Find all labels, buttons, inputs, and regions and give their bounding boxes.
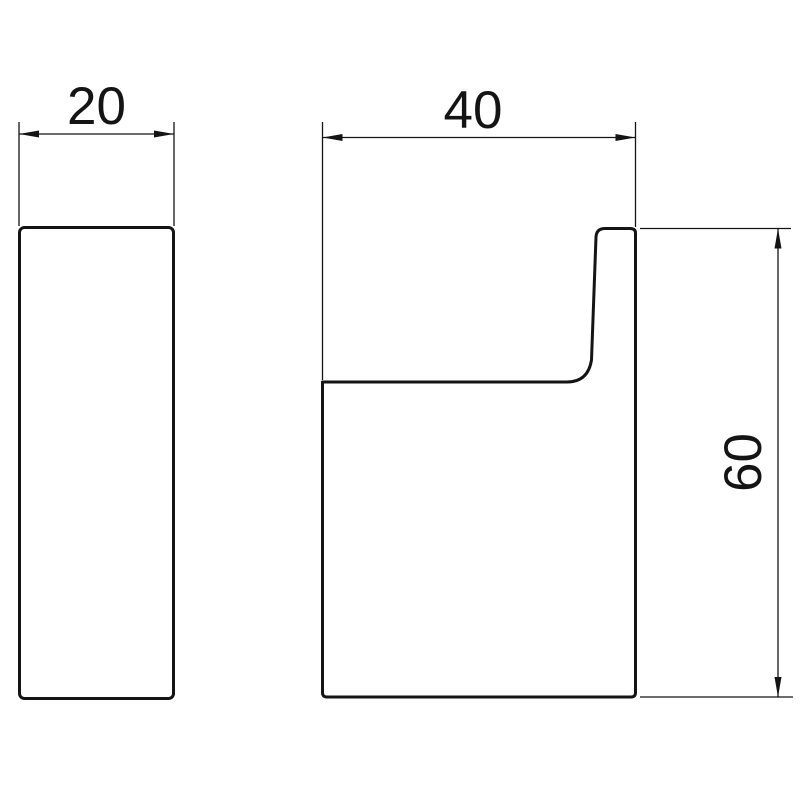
arrowhead-left-icon xyxy=(19,131,39,138)
dimension-label-front-width: 40 xyxy=(444,81,503,140)
arrowhead-right-icon xyxy=(154,131,174,138)
side-view xyxy=(20,228,174,699)
technical-drawing: 20 40 60 xyxy=(0,0,800,800)
dimension-40: 40 xyxy=(323,81,636,380)
arrowhead-down-icon xyxy=(775,677,782,697)
dimension-label-front-height: 60 xyxy=(714,433,773,492)
dimension-label-side-width: 20 xyxy=(67,77,126,136)
front-view-hook-outline xyxy=(323,229,636,698)
side-view-outline xyxy=(20,228,174,699)
dimension-60: 60 xyxy=(640,229,793,698)
arrowhead-left-icon xyxy=(323,134,343,141)
arrowhead-right-icon xyxy=(616,134,636,141)
dimension-20: 20 xyxy=(19,77,174,226)
drawing-page: 20 40 60 xyxy=(0,0,800,800)
arrowhead-up-icon xyxy=(775,229,782,249)
front-view xyxy=(323,229,636,698)
